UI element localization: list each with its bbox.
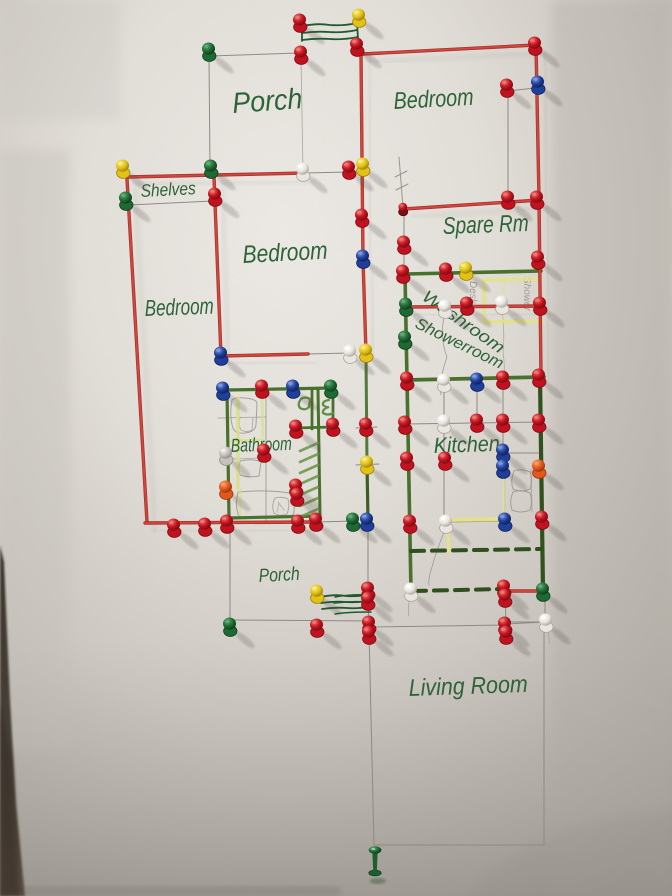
svg-text:Bedroom: Bedroom <box>393 84 474 115</box>
svg-text:Spare Rm: Spare Rm <box>442 210 529 240</box>
svg-text:Porch: Porch <box>258 564 300 587</box>
svg-text:Living Room: Living Room <box>408 671 528 702</box>
svg-text:Bedroom: Bedroom <box>144 293 214 321</box>
svg-text:Bedroom: Bedroom <box>242 237 328 269</box>
svg-text:Shelves: Shelves <box>140 178 196 201</box>
svg-text:Porch: Porch <box>231 83 303 120</box>
